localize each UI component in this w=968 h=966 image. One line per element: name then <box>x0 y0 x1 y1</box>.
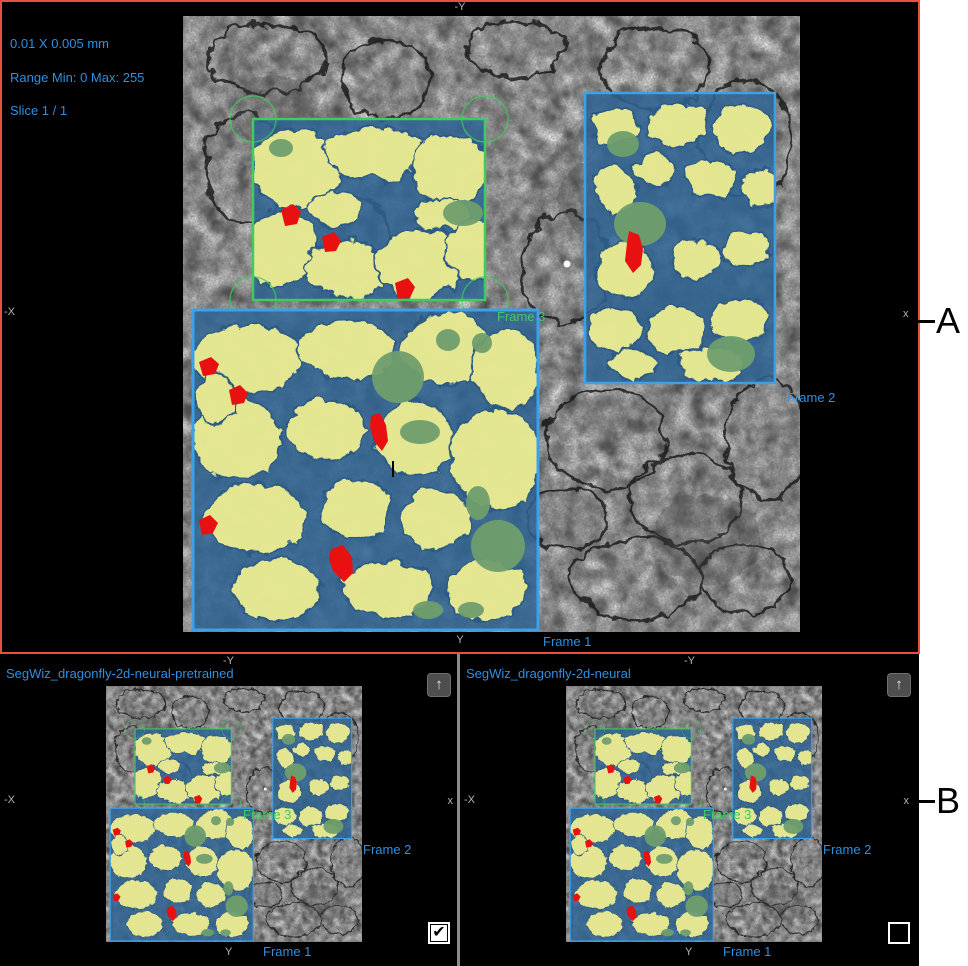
marker-a-letter: A <box>936 303 960 339</box>
axis-label-bottom: Y <box>685 946 692 958</box>
panel-divider <box>457 654 460 966</box>
frame-1-label: Frame 1 <box>723 944 771 959</box>
maximize-view-button[interactable]: ↑ <box>427 673 451 697</box>
view-marker-a: A <box>918 303 960 339</box>
frame-3-label: Frame 3 <box>497 309 545 324</box>
select-model-checkbox[interactable]: ✔ <box>428 922 450 944</box>
frame-2-label: Frame 2 <box>823 842 871 857</box>
cursor-mark <box>392 461 394 477</box>
frame-1-label: Frame 1 <box>543 634 591 649</box>
axis-label-right: x <box>903 308 909 320</box>
maximize-view-button[interactable]: ↑ <box>887 673 911 697</box>
select-model-checkbox[interactable] <box>888 922 910 944</box>
slice-viewport[interactable] <box>183 16 800 632</box>
axis-label-left: -X <box>464 794 475 806</box>
panel-title: SegWiz_dragonfly-2d-neural-pretrained <box>6 666 234 681</box>
axis-label-top: -Y <box>684 655 695 667</box>
marker-b-letter: B <box>936 783 960 819</box>
frame-1-label: Frame 1 <box>263 944 311 959</box>
axis-label-right: x <box>904 795 910 807</box>
frame-3-label: Frame 3 <box>243 807 291 822</box>
axis-label-bottom: Y <box>456 634 463 646</box>
view-marker-b: B <box>918 783 960 819</box>
axis-label-bottom: Y <box>225 946 232 958</box>
axis-label-left: -X <box>4 306 15 318</box>
axis-label-right: x <box>448 795 454 807</box>
axis-label-left: -X <box>4 794 15 806</box>
frame-2-label: Frame 2 <box>787 390 835 405</box>
frame-3-label: Frame 3 <box>703 807 751 822</box>
model-panel-neural: SegWiz_dragonfly-2d-neural -Y ↑ -X x Fra… <box>460 654 919 966</box>
axis-label-top: -Y <box>455 1 466 13</box>
axis-label-top: -Y <box>223 655 234 667</box>
scale-readout: 0.01 X 0.005 mm <box>10 36 109 51</box>
range-readout: Range Min: 0 Max: 255 <box>10 70 144 85</box>
slice-viewport[interactable] <box>566 686 822 942</box>
panel-title: SegWiz_dragonfly-2d-neural <box>466 666 631 681</box>
frame-2-label: Frame 2 <box>363 842 411 857</box>
marker-a-dash <box>918 320 935 323</box>
main-slice-panel: 0.01 X 0.005 mm Range Min: 0 Max: 255 Sl… <box>0 0 920 654</box>
slice-viewport[interactable] <box>106 686 362 942</box>
marker-b-dash <box>918 800 935 803</box>
model-panel-pretrained: SegWiz_dragonfly-2d-neural-pretrained -Y… <box>0 654 457 966</box>
slice-readout: Slice 1 / 1 <box>10 103 67 118</box>
